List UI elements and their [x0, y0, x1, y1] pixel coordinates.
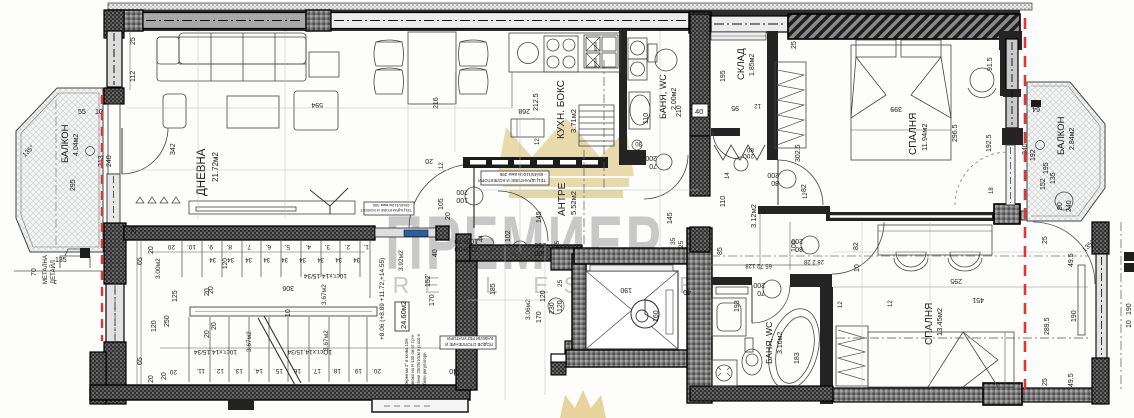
svg-text:в стени 25/25/10см в р.осв и: в стени 25/25/10см в р.осв и: [416, 333, 421, 389]
svg-text:210+50: 210+50: [454, 245, 478, 252]
svg-text:12: 12: [439, 162, 445, 169]
svg-text:5.52м2: 5.52м2: [569, 191, 578, 215]
svg-text:216: 216: [433, 97, 440, 109]
svg-text:399: 399: [890, 105, 902, 112]
svg-text:183: 183: [794, 352, 801, 364]
svg-text:12: 12: [535, 138, 541, 145]
svg-text:190: 190: [620, 286, 632, 293]
svg-text:ПОДОВ ОТОПЛЕНИЕ И: ПОДОВ ОТОПЛЕНИЕ И: [445, 342, 493, 347]
svg-text:19.: 19.: [353, 367, 362, 374]
svg-text:- 65/45/110см вжм 395: - 65/45/110см вжм 395: [499, 172, 546, 177]
svg-text:152: 152: [1040, 178, 1047, 190]
svg-text:12.: 12.: [215, 367, 224, 374]
svg-text:195: 195: [1043, 162, 1050, 174]
svg-text:192.5: 192.5: [986, 134, 993, 152]
svg-text:БАНЯ, WC: БАНЯ, WC: [658, 74, 668, 119]
svg-text:100: 100: [456, 196, 468, 203]
svg-text:СКЛАД: СКЛАД: [736, 48, 747, 80]
svg-text:3.67м2: 3.67м2: [246, 331, 253, 352]
svg-text:105: 105: [438, 198, 445, 210]
svg-text:2.84м2: 2.84м2: [1069, 128, 1076, 150]
svg-text:20: 20: [445, 212, 452, 220]
svg-text:100: 100: [791, 240, 798, 252]
svg-text:БАНЯ, WC: БАНЯ, WC: [764, 322, 774, 364]
svg-text:20: 20: [148, 375, 155, 383]
svg-text:70: 70: [757, 289, 765, 296]
svg-text:7.: 7.: [245, 243, 251, 250]
svg-text:10ст.x14,15/34: 10ст.x14,15/34: [304, 272, 347, 279]
svg-text:49.5: 49.5: [1068, 253, 1075, 267]
svg-text:306: 306: [282, 284, 294, 291]
svg-text:3.: 3.: [324, 243, 330, 250]
svg-text:20: 20: [211, 322, 218, 330]
svg-text:12: 12: [888, 300, 894, 307]
svg-text:55: 55: [78, 109, 86, 116]
svg-text:82: 82: [801, 184, 808, 192]
svg-text:12: 12: [803, 192, 809, 199]
svg-text:3.67м2: 3.67м2: [323, 330, 330, 351]
svg-text:200: 200: [645, 154, 657, 161]
svg-text:65: 65: [137, 357, 144, 365]
svg-text:21.72м2: 21.72м2: [211, 151, 220, 182]
svg-text:СПАЛНЯ: СПАЛНЯ: [924, 303, 935, 345]
svg-text:160: 160: [653, 310, 660, 322]
svg-text:594: 594: [311, 101, 323, 108]
svg-text:120: 120: [557, 300, 564, 312]
svg-text:240: 240: [1066, 200, 1073, 212]
svg-text:3.92м2: 3.92м2: [398, 250, 405, 271]
svg-text:70: 70: [649, 162, 657, 169]
svg-text:12: 12: [838, 301, 844, 308]
svg-text:44: 44: [479, 235, 485, 242]
svg-text:200: 200: [743, 152, 754, 159]
svg-text:МЕТАЛНА: МЕТАЛНА: [43, 255, 49, 284]
svg-text:210: 210: [534, 241, 546, 248]
svg-text:4.04м2: 4.04м2: [73, 134, 80, 156]
svg-text:200: 200: [456, 188, 468, 195]
svg-text:200: 200: [753, 281, 765, 288]
svg-text:190: 190: [1126, 303, 1133, 315]
svg-text:- 65/45/110м вжм 395: - 65/45/110м вжм 395: [372, 203, 412, 208]
svg-text:212.5: 212.5: [533, 93, 540, 111]
svg-text:193: 193: [734, 300, 741, 312]
svg-text:25: 25: [791, 41, 798, 49]
svg-text:20: 20: [148, 246, 155, 254]
svg-text:34: 34: [299, 256, 306, 262]
svg-text:192: 192: [1030, 149, 1037, 161]
svg-text:АНТРЕ: АНТРЕ: [557, 182, 568, 216]
svg-text:3.16м2: 3.16м2: [777, 332, 784, 354]
svg-text:195: 195: [720, 70, 727, 82]
svg-text:110: 110: [720, 196, 727, 207]
svg-text:110: 110: [643, 113, 650, 124]
svg-text:КУХН. БОКС: КУХН. БОКС: [556, 80, 567, 139]
svg-text:135: 135: [1050, 172, 1057, 184]
svg-text:120: 120: [151, 320, 158, 332]
svg-text:БАЛКОН: БАЛКОН: [60, 124, 71, 163]
svg-text:289.5: 289.5: [1044, 317, 1051, 335]
svg-text:20: 20: [161, 372, 168, 380]
svg-text:3.06м2: 3.06м2: [525, 299, 532, 320]
svg-text:230: 230: [549, 302, 556, 314]
svg-text:10: 10: [285, 309, 292, 317]
svg-text:82: 82: [853, 242, 860, 250]
svg-text:СПАЛНЯ: СПАЛНЯ: [908, 113, 919, 155]
svg-text:34: 34: [263, 256, 270, 262]
svg-text:3.71м2: 3.71м2: [569, 109, 578, 133]
svg-text:12: 12: [754, 102, 761, 108]
svg-text:24.60м2: 24.60м2: [399, 301, 408, 329]
svg-text:342: 342: [170, 143, 177, 155]
svg-text:34: 34: [281, 256, 288, 262]
svg-text:65: 65: [137, 257, 144, 265]
svg-text:1.85м2: 1.85м2: [749, 54, 756, 76]
svg-text:40: 40: [683, 288, 691, 295]
svg-text:49.5: 49.5: [1068, 373, 1075, 387]
svg-text:14: 14: [725, 172, 731, 179]
svg-text:25: 25: [1042, 378, 1049, 386]
svg-text:25: 25: [1042, 236, 1049, 244]
svg-text:102: 102: [505, 230, 512, 242]
svg-text:20: 20: [167, 243, 175, 250]
svg-text:190: 190: [1071, 310, 1078, 322]
svg-text:20: 20: [204, 330, 211, 338]
svg-text:170: 170: [429, 294, 436, 306]
svg-text:70: 70: [31, 268, 38, 276]
svg-text:125: 125: [172, 290, 179, 302]
svg-text:15.: 15.: [274, 367, 283, 374]
svg-text:о меэко на Н 135 см от т.р-н: о меэко на Н 135 см от т.р-н: [410, 334, 415, 389]
svg-text:295: 295: [70, 179, 77, 191]
svg-text:90: 90: [1057, 202, 1064, 210]
svg-text:40: 40: [449, 367, 457, 374]
svg-text:40: 40: [695, 107, 703, 116]
svg-text:1.: 1.: [363, 243, 369, 250]
svg-text:35: 35: [670, 237, 677, 245]
svg-text:3.67м2: 3.67м2: [321, 284, 328, 305]
svg-text:13.45м2: 13.45м2: [935, 308, 944, 336]
svg-text:100: 100: [534, 249, 546, 256]
svg-text:13.: 13.: [234, 367, 243, 374]
svg-text:10.: 10.: [187, 243, 196, 250]
svg-text:5.: 5.: [284, 243, 290, 250]
svg-text:80: 80: [746, 146, 754, 153]
svg-text:20: 20: [169, 368, 177, 375]
svg-text:20.: 20.: [372, 367, 381, 374]
svg-text:85: 85: [717, 247, 724, 255]
svg-text:295: 295: [950, 277, 962, 284]
svg-text:200: 200: [767, 171, 779, 178]
svg-text:+8.06 (+8.89 +11.72,+14.55): +8.06 (+8.89 +11.72,+14.55): [379, 258, 386, 340]
svg-text:250: 250: [164, 315, 171, 327]
svg-text:10: 10: [1126, 320, 1133, 328]
svg-text:30: 30: [635, 140, 642, 146]
svg-text:сутеренъм 2° в кхнва 10/6: сутеренъм 2° в кхнва 10/6: [404, 338, 409, 389]
svg-text:17.: 17.: [312, 367, 321, 374]
svg-text:БАЛКОН: БАЛКОН: [1056, 116, 1067, 155]
svg-text:9.: 9.: [207, 243, 213, 250]
svg-text:152': 152': [425, 274, 432, 287]
svg-text:296.5: 296.5: [952, 124, 959, 142]
svg-text:80: 80: [771, 179, 779, 186]
svg-text:34: 34: [245, 256, 252, 262]
svg-text:8.: 8.: [226, 243, 232, 250]
svg-text:3.12м2: 3.12м2: [749, 204, 758, 228]
svg-text:34: 34: [335, 256, 342, 262]
svg-text:34: 34: [209, 256, 216, 262]
svg-text:210: 210: [676, 105, 683, 117]
svg-text:120: 120: [540, 290, 547, 302]
svg-text:28 2 28: 28 2 28: [803, 258, 824, 264]
svg-text:18: 18: [989, 187, 995, 194]
svg-text:60М: 60М: [593, 42, 598, 51]
svg-text:64: 64: [1032, 105, 1040, 112]
svg-text:10: 10: [854, 264, 861, 272]
svg-text:20: 20: [208, 286, 215, 294]
svg-text:451: 451: [972, 296, 984, 303]
svg-text:25: 25: [130, 37, 137, 45]
svg-text:34: 34: [227, 256, 234, 262]
svg-text:40: 40: [432, 249, 439, 257]
svg-text:25: 25: [554, 240, 561, 248]
svg-text:25: 25: [131, 226, 138, 234]
svg-text:11.: 11.: [196, 367, 205, 374]
svg-text:112: 112: [130, 71, 137, 82]
svg-text:95: 95: [731, 104, 739, 111]
svg-text:3.00м2: 3.00м2: [155, 258, 162, 279]
svg-text:20: 20: [425, 157, 433, 164]
svg-text:кабели регулатори: кабели регулатори: [422, 352, 427, 389]
svg-text:145: 145: [536, 211, 543, 223]
svg-text:25: 25: [678, 240, 685, 248]
svg-text:11.94м2: 11.94м2: [920, 123, 929, 151]
svg-text:25: 25: [557, 279, 564, 287]
svg-text:60М: 60М: [593, 58, 598, 67]
svg-text:ТЕЦ ЩРАНГОВЕ И КОЛЕКТОРИ: ТЕЦ ЩРАНГОВЕ И КОЛЕКТОРИ: [478, 178, 546, 183]
svg-text:34: 34: [317, 256, 324, 262]
svg-text:6.: 6.: [265, 243, 271, 250]
svg-text:10ст.x14,15/34: 10ст.x14,15/34: [194, 348, 237, 355]
svg-text:145: 145: [667, 212, 674, 224]
svg-text:КАБЕЛИ РЕГУЛАТОРИ: КАБЕЛИ РЕГУЛАТОРИ: [447, 336, 493, 341]
svg-text:302.5: 302.5: [795, 144, 802, 162]
svg-text:170: 170: [536, 311, 543, 323]
svg-text:14.: 14.: [254, 367, 263, 374]
svg-text:185: 185: [490, 283, 497, 295]
svg-text:240: 240: [106, 155, 113, 167]
svg-text:100+70: 100+70: [454, 237, 478, 244]
svg-text:18.: 18.: [332, 367, 341, 374]
svg-text:34: 34: [353, 256, 360, 262]
svg-text:ДЕТАЙЛ: ДЕТАЙЛ: [49, 260, 57, 284]
svg-text:2.: 2.: [344, 243, 350, 250]
svg-text:4.: 4.: [305, 243, 311, 250]
svg-text:91.5: 91.5: [987, 57, 994, 71]
